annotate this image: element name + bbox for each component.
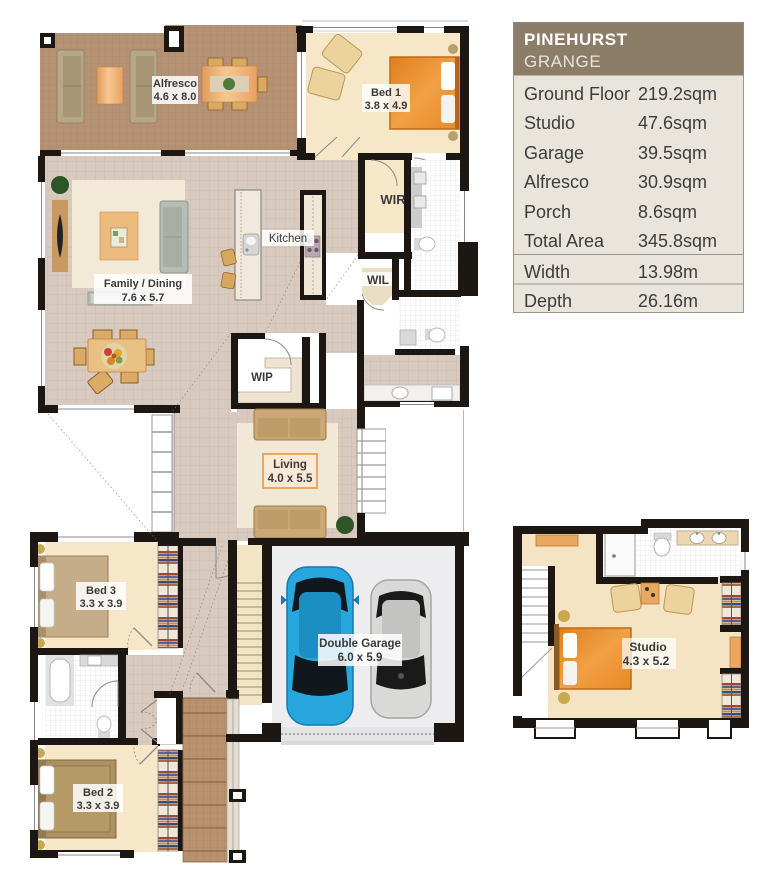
svg-text:Depth: Depth (524, 291, 572, 311)
svg-text:WIL: WIL (367, 273, 389, 287)
svg-text:4.3 x 5.2: 4.3 x 5.2 (623, 654, 670, 668)
svg-text:8.6sqm: 8.6sqm (638, 202, 697, 222)
svg-text:Porch: Porch (524, 202, 571, 222)
svg-text:Family / Dining: Family / Dining (104, 278, 182, 290)
svg-text:Bed 1: Bed 1 (371, 87, 401, 99)
svg-text:4.0 x 5.5: 4.0 x 5.5 (268, 473, 313, 485)
svg-text:6.0 x 5.9: 6.0 x 5.9 (338, 652, 383, 664)
svg-text:26.16m: 26.16m (638, 291, 698, 311)
svg-text:Ground Floor: Ground Floor (524, 84, 630, 104)
svg-text:WIR: WIR (380, 192, 406, 207)
svg-text:Studio: Studio (524, 113, 575, 133)
svg-text:47.6sqm: 47.6sqm (638, 113, 707, 133)
svg-text:3.3 x 3.9: 3.3 x 3.9 (77, 800, 120, 812)
svg-text:Bed 2: Bed 2 (83, 787, 113, 799)
svg-text:30.9sqm: 30.9sqm (638, 172, 707, 192)
svg-text:Garage: Garage (524, 143, 584, 163)
svg-text:Studio: Studio (629, 640, 666, 654)
svg-text:Alfresco: Alfresco (524, 172, 589, 192)
svg-text:13.98m: 13.98m (638, 262, 698, 282)
svg-text:Alfresco: Alfresco (153, 78, 197, 90)
svg-text:PINEHURST: PINEHURST (524, 30, 628, 49)
svg-text:WIP: WIP (251, 372, 273, 384)
svg-text:7.6 x 5.7: 7.6 x 5.7 (122, 292, 165, 304)
svg-text:219.2sqm: 219.2sqm (638, 84, 717, 104)
svg-text:3.8 x 4.9: 3.8 x 4.9 (365, 100, 408, 112)
svg-text:Total Area: Total Area (524, 231, 605, 251)
svg-text:Width: Width (524, 262, 570, 282)
svg-text:Living: Living (273, 459, 307, 471)
svg-text:3.3 x 3.9: 3.3 x 3.9 (80, 598, 123, 610)
svg-text:4.6 x 8.0: 4.6 x 8.0 (154, 91, 197, 103)
svg-text:GRANGE: GRANGE (524, 52, 601, 71)
svg-text:345.8sqm: 345.8sqm (638, 231, 717, 251)
svg-text:Double Garage: Double Garage (319, 638, 401, 650)
svg-text:Bed 3: Bed 3 (86, 585, 116, 597)
svg-text:39.5sqm: 39.5sqm (638, 143, 707, 163)
svg-text:Kitchen: Kitchen (269, 233, 307, 245)
